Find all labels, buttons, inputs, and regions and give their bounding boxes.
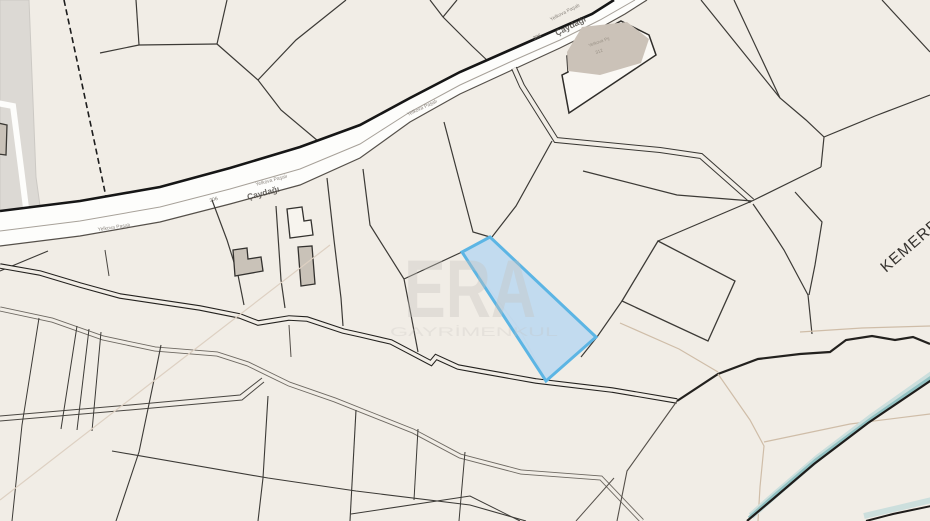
svg-text:ERA: ERA [404,244,536,335]
svg-text:GAYRİMENKUL: GAYRİMENKUL [390,325,558,339]
